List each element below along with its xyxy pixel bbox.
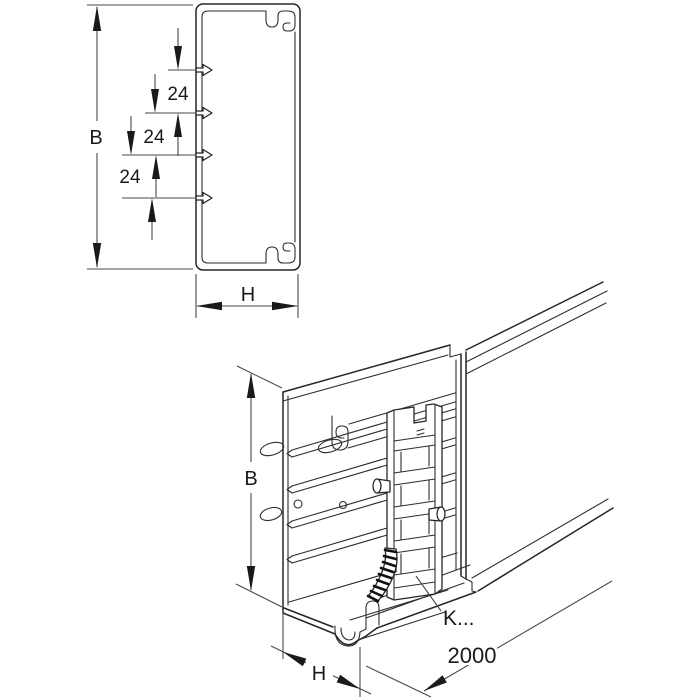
round-hole [294, 500, 302, 508]
dimension-h-3d: H [271, 613, 371, 697]
spacing-dim-label: 24 [119, 167, 141, 188]
duct-cut-face [283, 392, 288, 612]
duct-outer-profile [196, 4, 300, 270]
coupler-screw [429, 507, 445, 521]
length-dim-label: 2000 [448, 643, 497, 668]
knockout-arrows [196, 65, 212, 204]
cross-section-view: 24 24 24 B [85, 4, 300, 318]
spacing-dimension-1: 24 [167, 28, 189, 156]
mounting-slots [259, 437, 347, 523]
knockout-arrow-icon [196, 150, 212, 161]
coupler [368, 404, 445, 602]
knockout-arrow-icon [196, 108, 212, 119]
perspective-view: B H 2000 K... [236, 282, 613, 697]
coupler-label: K... [443, 607, 475, 630]
floor-channel-inner [341, 628, 355, 640]
dimension-b-3d: B [236, 366, 282, 607]
knockout-arrow-icon [196, 193, 212, 204]
duct-end-edge [456, 352, 476, 592]
spacing-dim-label: 24 [143, 127, 165, 148]
width-dim-label: H [312, 663, 326, 685]
coupler-screw [373, 479, 390, 493]
technical-drawing-canvas: 24 24 24 B [0, 0, 700, 700]
far-duct-lines [466, 282, 613, 591]
spacing-dim-label: 24 [167, 84, 189, 105]
lid-hook-bottom-profile [266, 243, 295, 263]
knockout-arrow-icon [196, 65, 212, 76]
lid-hook-top-profile [266, 11, 295, 31]
dimension-h-2d: H [196, 274, 298, 318]
spacing-dimension-2: 24 [143, 74, 165, 197]
height-dim-label: B [244, 468, 257, 490]
oblong-slot [259, 505, 283, 523]
width-dim-label: H [241, 284, 255, 306]
trunking-drawing: 24 24 24 B [0, 0, 700, 700]
floor-channel-outer [335, 626, 360, 646]
duct-inner-wall [202, 11, 266, 263]
height-dim-label: B [89, 127, 102, 149]
oblong-slot [259, 440, 285, 458]
